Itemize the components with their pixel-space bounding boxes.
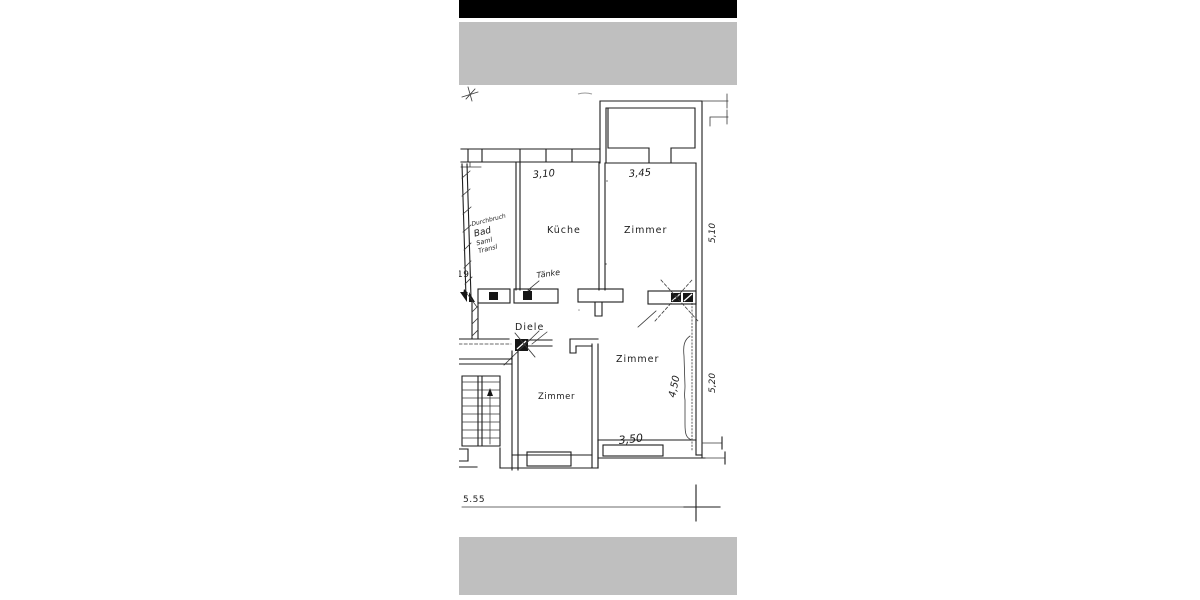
bottom-dimension-line <box>462 485 720 521</box>
door-wall-right-zimmer <box>638 280 698 327</box>
handwritten-bad-note: Durchbruch Bad Saml Transl <box>471 213 514 256</box>
diele-walls <box>459 331 598 365</box>
room-label-zimmer-left: Zimmer <box>538 392 575 402</box>
south-wall-left <box>459 448 598 468</box>
mid-zimmer-wall <box>592 344 598 468</box>
zimmer-left-west-wall <box>512 351 518 470</box>
room-label-kueche: Küche <box>547 225 581 236</box>
dimension-5-55: 5.55 <box>463 495 485 505</box>
kueche-zimmer-wall <box>599 163 605 290</box>
registration-star-mark <box>462 87 478 101</box>
bay-walls <box>600 101 702 458</box>
stair-hall-wall <box>459 359 512 364</box>
handwritten-sink-note: Tänke <box>536 268 561 280</box>
dimension-brace <box>684 336 692 440</box>
dimension-5-10: 5,10 <box>708 223 718 243</box>
edge-partial-note: 19 <box>459 270 469 280</box>
dimension-5-20: 5,20 <box>708 373 718 393</box>
north-wall <box>461 149 600 167</box>
room-label-zimmer-right: Zimmer <box>616 354 659 365</box>
dimension-3-10: 3,10 <box>532 168 555 181</box>
dimension-3-45: 3,45 <box>628 167 651 180</box>
south-wall-right <box>598 437 725 468</box>
scan-smudge <box>578 93 592 94</box>
dimension-3-50: 3,50 <box>618 431 644 446</box>
dimension-ticks-top-right <box>703 94 728 126</box>
room-label-zimmer-top: Zimmer <box>624 225 667 236</box>
dimension-4-50: 4,50 <box>667 375 682 399</box>
scanned-page: Küche Zimmer Zimmer Zimmer Diele 3,10 3,… <box>0 0 1200 600</box>
bad-kueche-wall <box>516 162 520 290</box>
floorplan-drawing: Küche Zimmer Zimmer Zimmer Diele 3,10 3,… <box>459 0 737 600</box>
scan-speck <box>606 180 608 182</box>
scan-strip: Küche Zimmer Zimmer Zimmer Diele 3,10 3,… <box>459 0 737 600</box>
staircase <box>462 376 500 446</box>
room-label-diele: Diele <box>515 322 544 333</box>
scan-speck <box>578 309 580 311</box>
